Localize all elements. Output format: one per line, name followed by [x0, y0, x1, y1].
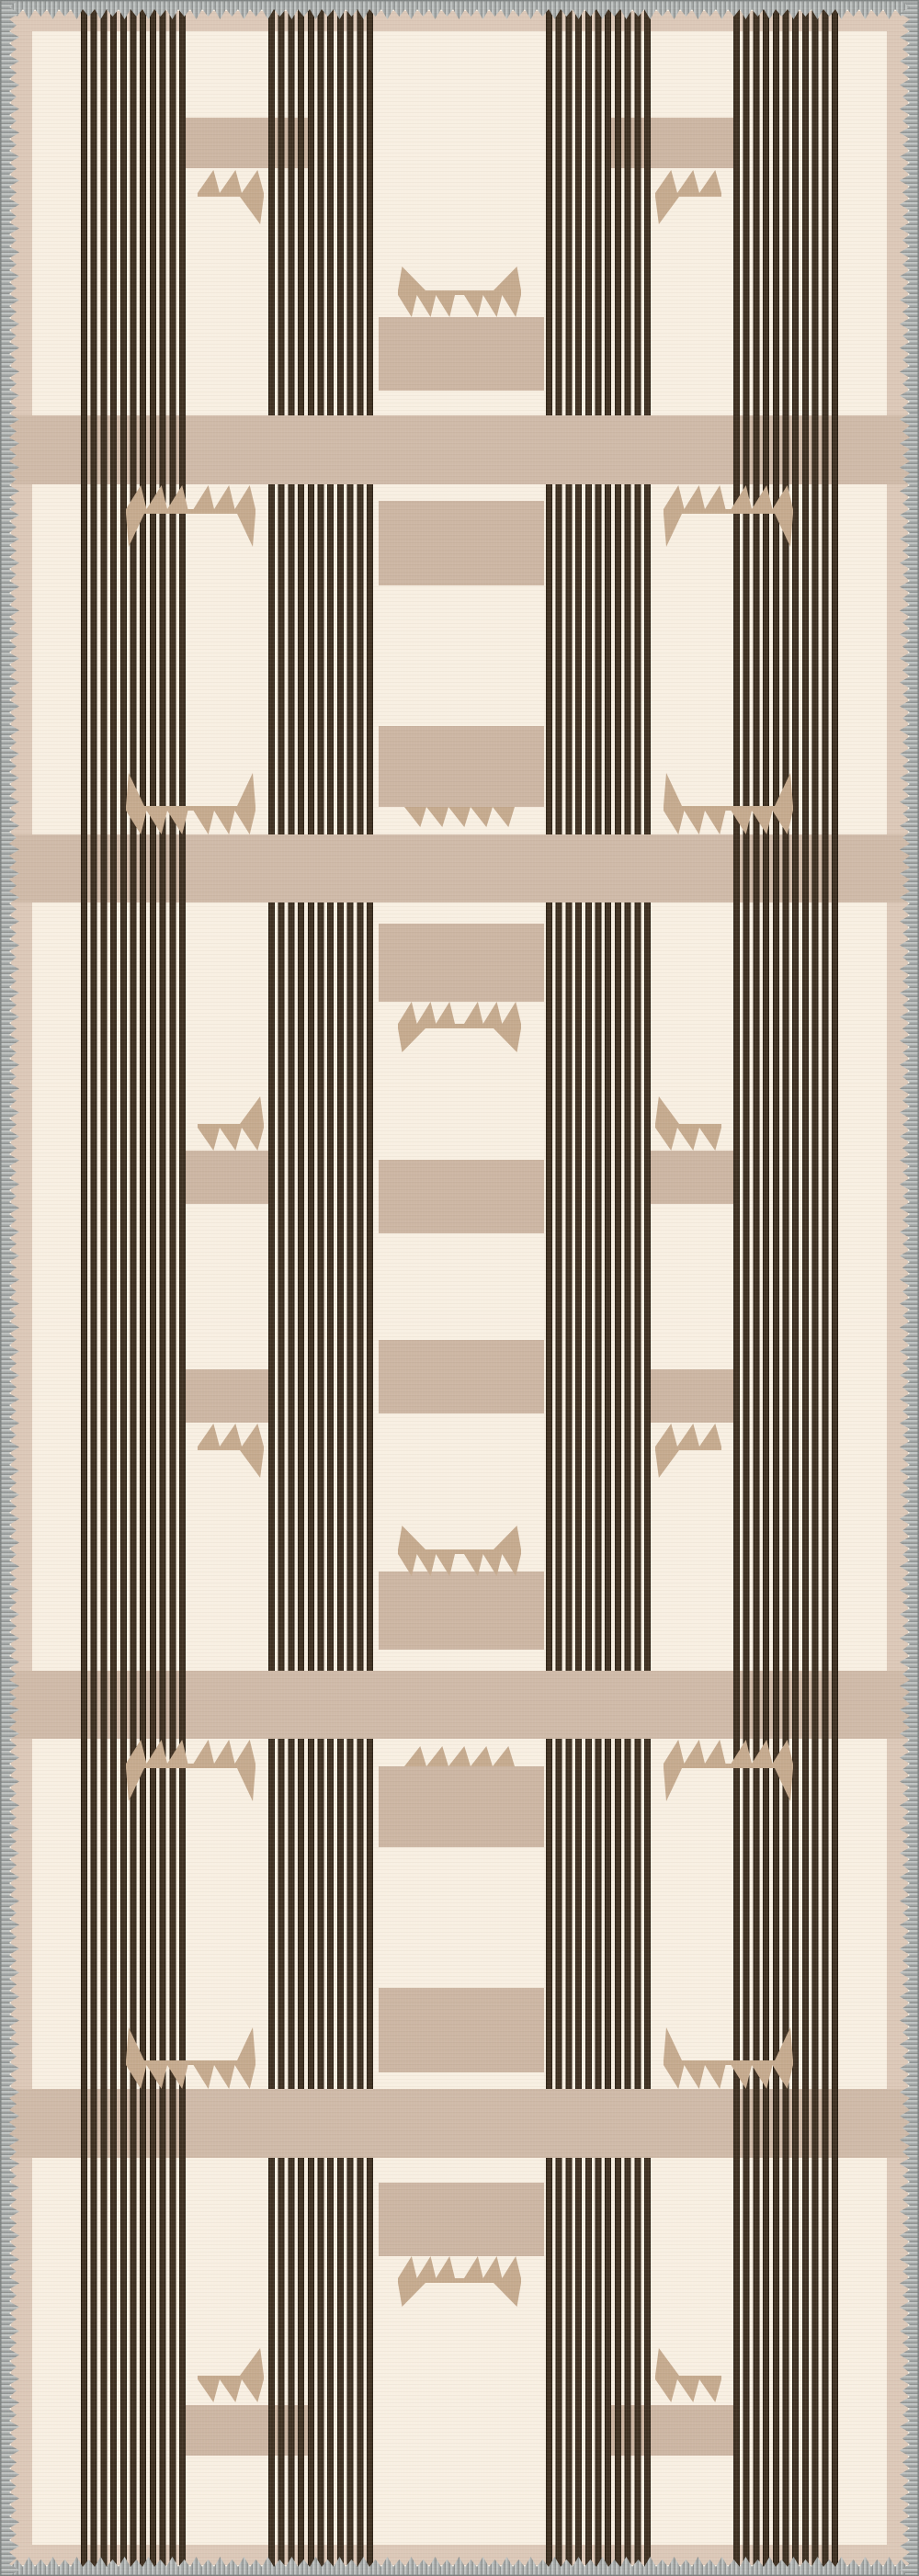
serge-edge-left — [0, 0, 19, 2576]
serge-edge-top — [0, 0, 919, 19]
serge-edge-bottom — [0, 2557, 919, 2576]
rug-runner — [0, 0, 919, 2576]
serge-rim — [0, 0, 2, 2576]
serge-edge-right — [900, 0, 919, 2576]
serge-rim — [0, 0, 919, 2]
serge-border — [0, 0, 919, 2576]
